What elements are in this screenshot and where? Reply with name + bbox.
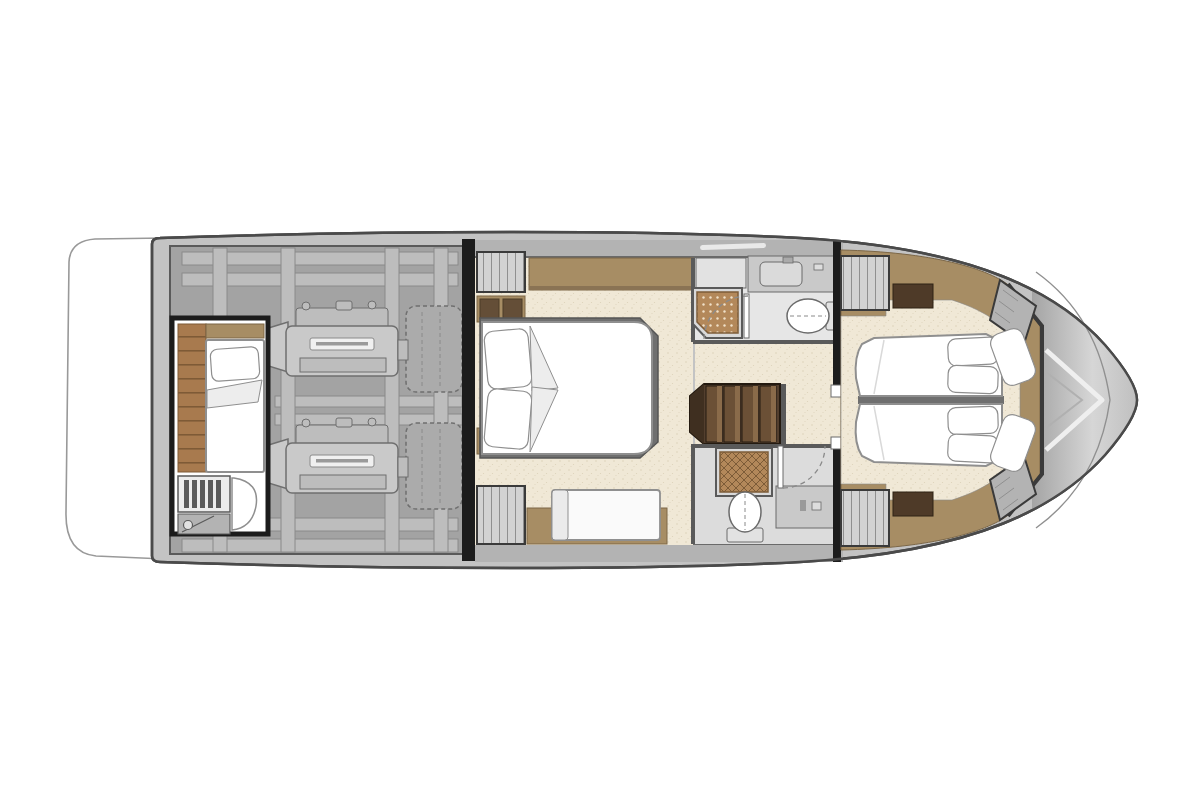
crew-cabin-wood-floor: [178, 324, 206, 472]
forward-dresser-top: [893, 284, 933, 308]
engine-label-text: [316, 459, 368, 463]
pillow: [948, 365, 999, 394]
deck-hatch: [178, 514, 230, 534]
vanity-counter: [748, 256, 834, 292]
crew-berth: [206, 340, 264, 472]
pillow: [484, 328, 533, 390]
pillow: [948, 406, 999, 435]
toilet-bottom: [727, 492, 763, 542]
wall-master-bath-bottom: [691, 444, 695, 544]
floor-plan-canvas: [0, 0, 1200, 800]
shower-grate-woven: [720, 452, 768, 492]
bulkhead-forward-top: [833, 240, 841, 390]
berth-divider: [858, 396, 1004, 404]
bulkhead-aft: [462, 239, 475, 561]
forward-dresser-bottom: [893, 492, 933, 516]
shower-top: [693, 288, 742, 338]
bathroom-port: [693, 444, 843, 544]
wall-bath-top: [693, 340, 843, 344]
crew-cabin-shelf: [206, 324, 264, 338]
forward-wardrobe-bottom: [841, 490, 889, 546]
yacht-floor-plan: [0, 0, 1200, 800]
toilet-top: [787, 299, 835, 333]
door-leaf-bath-top: [744, 294, 749, 338]
swim-platform: [66, 238, 164, 559]
staircase: [690, 384, 780, 444]
engine-label-text: [316, 342, 368, 346]
master-side-shelf: [529, 258, 693, 290]
exhaust-muffler-starboard: [406, 423, 462, 509]
crew-cabin: [172, 318, 268, 534]
door-leaf-bath-bottom: [778, 446, 783, 488]
forward-cabin: [841, 250, 1042, 550]
exhaust-muffler-port: [406, 306, 462, 392]
master-settee: [552, 490, 660, 540]
bathroom-starboard: [693, 256, 843, 344]
bulkhead-forward-bottom: [833, 446, 841, 562]
crew-cabin-ladder: [178, 476, 230, 512]
master-wardrobe-aft-bottom: [477, 486, 525, 544]
master-wardrobe-aft-top: [477, 252, 525, 292]
master-cabin: [475, 252, 695, 545]
pillow: [484, 388, 533, 450]
shower-bottom: [716, 448, 772, 496]
vanity-counter-bottom: [776, 486, 836, 528]
vanity-cabinet: [696, 258, 746, 288]
master-bed: [480, 318, 658, 458]
forward-wardrobe-top: [841, 256, 889, 310]
swim-platform-deck: [66, 238, 164, 559]
shower-grate-dotted: [697, 292, 738, 333]
